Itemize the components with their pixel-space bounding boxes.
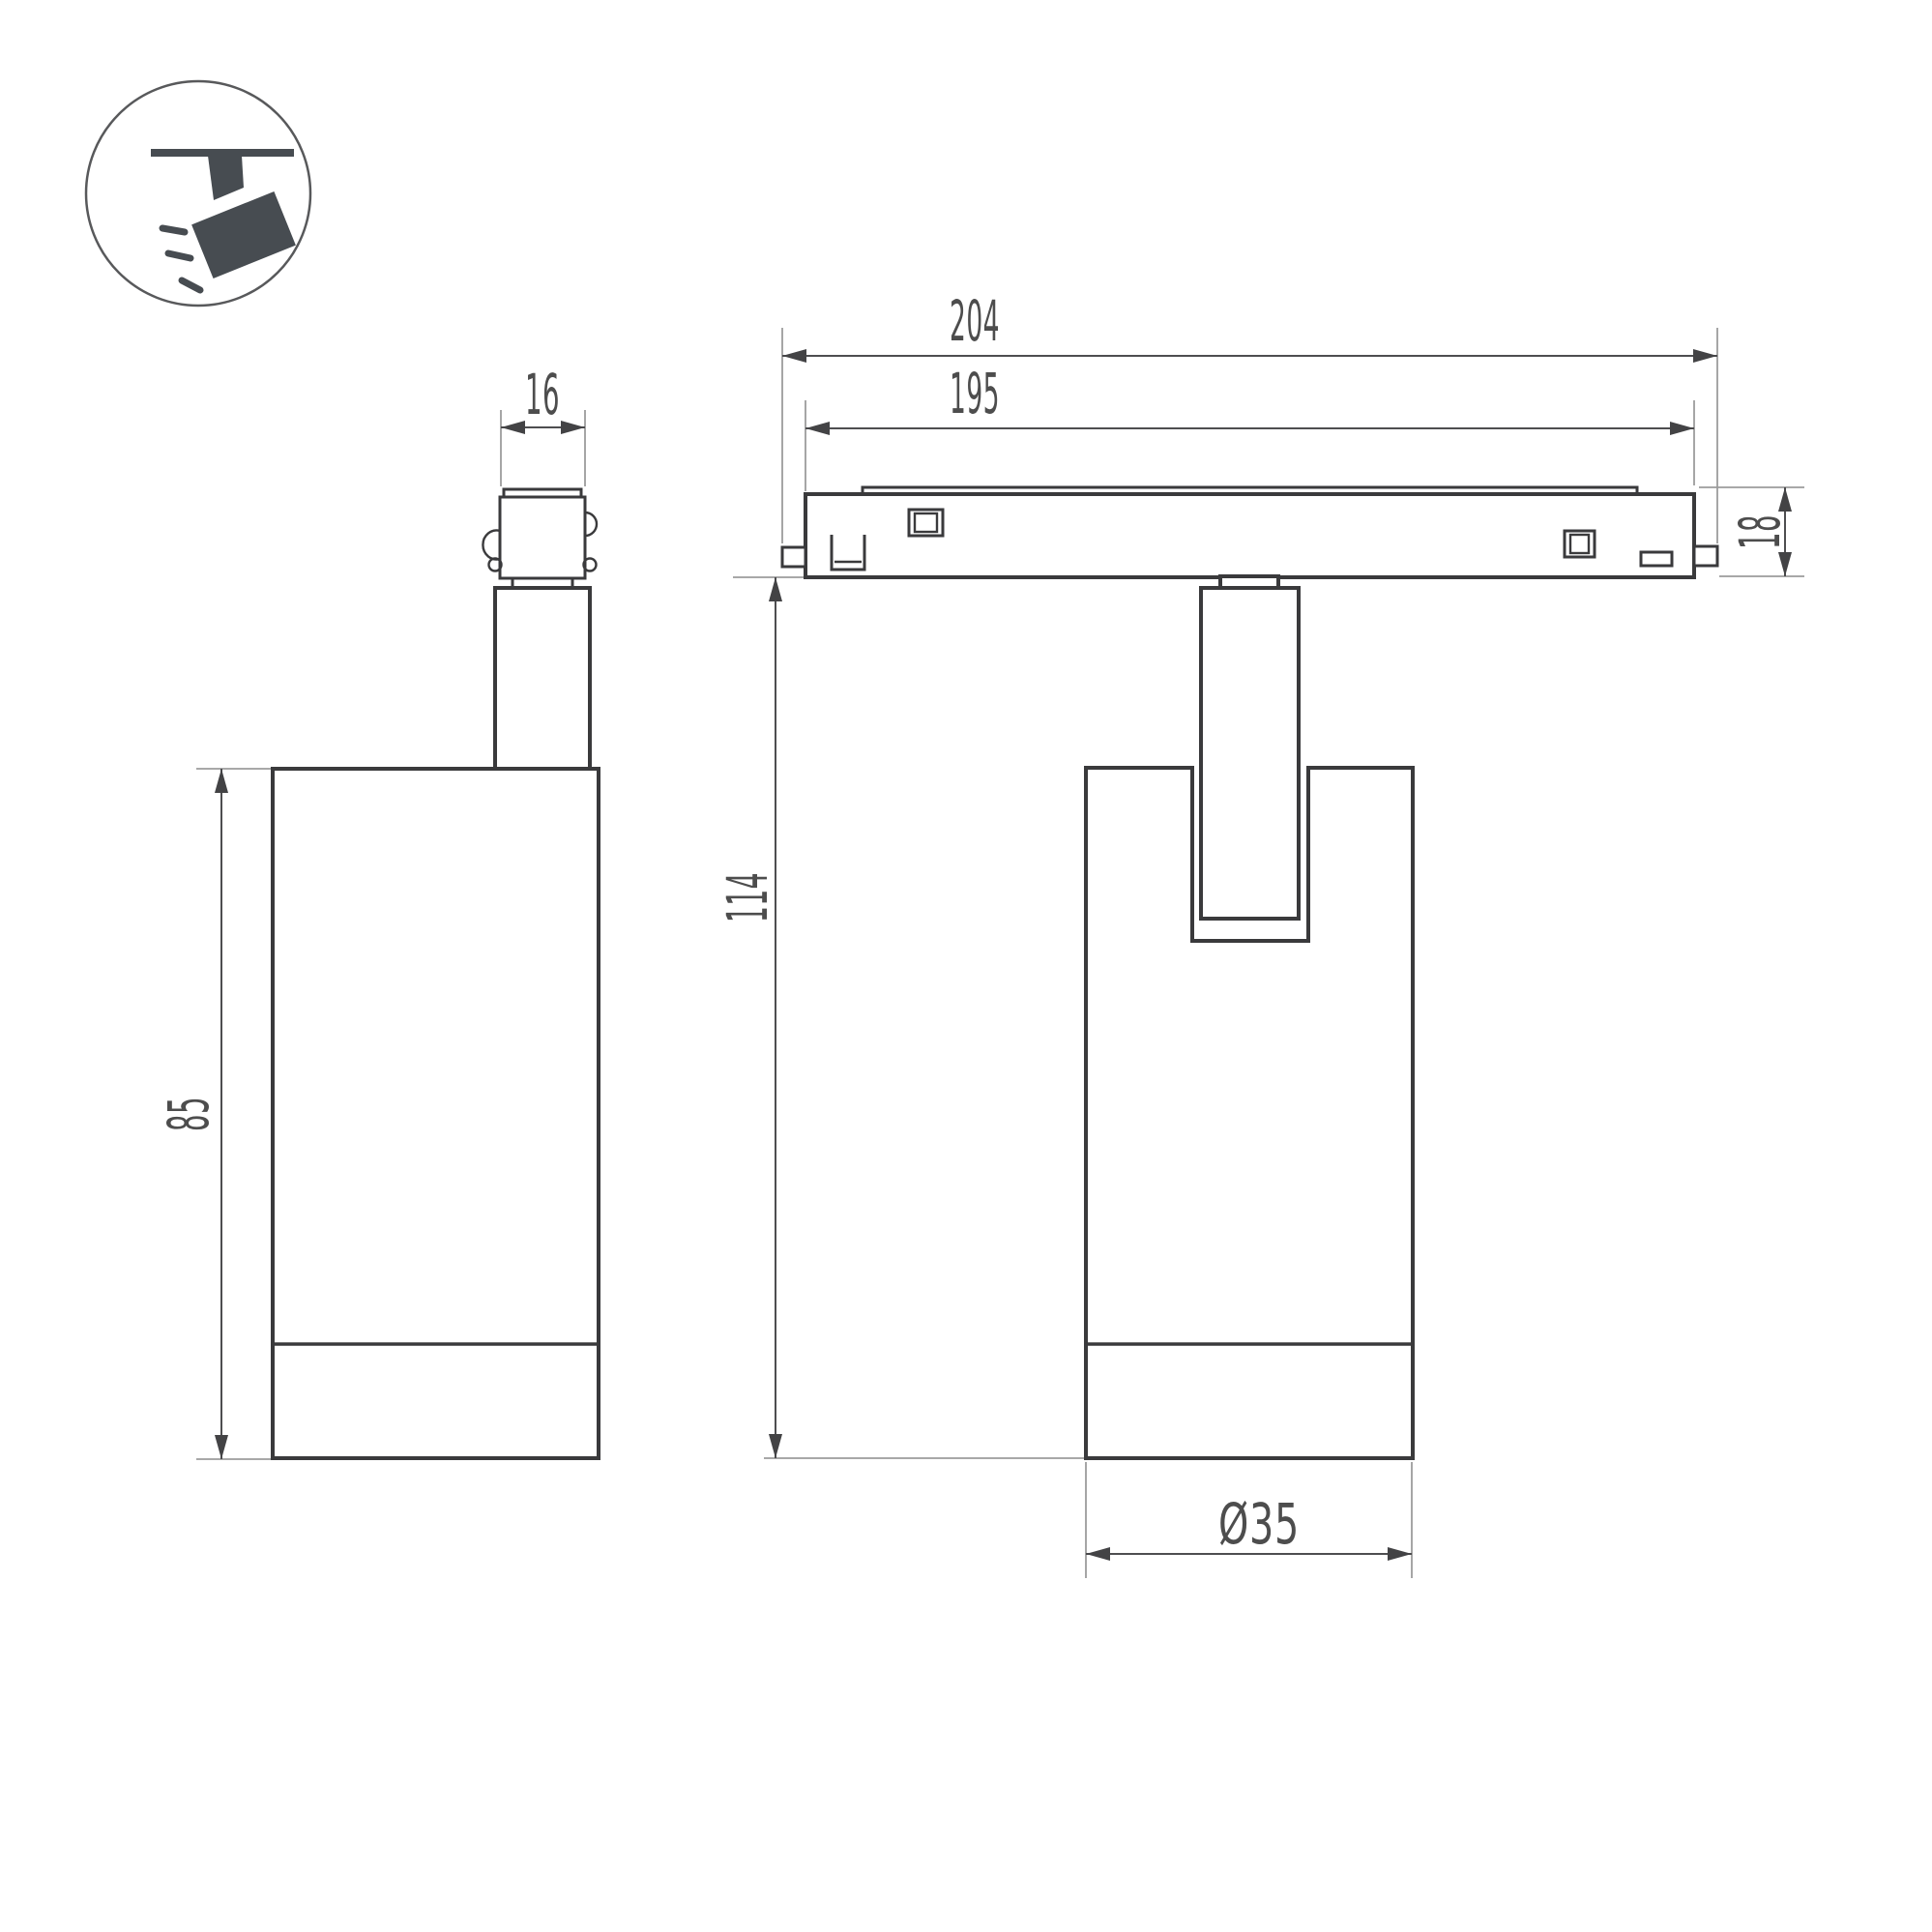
arrowhead-down [215,1435,228,1459]
track-right-latch [1694,546,1717,566]
front-pivot-stem [1201,588,1299,919]
dimension-label-195: 195 [950,361,1000,426]
dimension-label-85: 85 [156,1097,221,1131]
side-adapter-box [500,497,585,578]
dimension-16: 16 [501,362,585,486]
dimension-label-16: 16 [525,362,560,427]
side-head-body [273,769,599,1458]
arrowhead-up [1778,487,1792,512]
icon-ceiling-track-bar [151,149,294,157]
arrowhead-up [215,769,228,793]
front-track-neck [1220,576,1278,588]
arrowhead-left [782,349,806,363]
arrowhead-down [1778,552,1792,576]
dimension-label-18: 18 [1727,514,1793,549]
technical-drawing-canvas: 204 195 18 16 85 [0,0,1932,1932]
arrowhead-right [1693,349,1717,363]
dimension-label-114: 114 [715,872,780,922]
spotlight-front-view [1086,576,1413,1458]
side-adapter-hook-left [483,531,500,560]
dimension-195: 195 [805,361,1694,491]
icon-ring [86,81,310,306]
arrowhead-right [561,421,585,434]
arrowhead-right [1670,422,1694,435]
arrowhead-down [769,1434,782,1458]
dimension-label-204: 204 [950,288,1000,354]
arrowhead-right [1388,1547,1412,1561]
arrowhead-left [1086,1547,1110,1561]
side-adapter-hook-right [585,512,597,536]
dimension-114: 114 [715,577,1084,1458]
arrowhead-up [769,577,782,601]
dimension-drawing-svg: 204 195 18 16 85 [0,0,1932,1932]
icon-light-ray [162,228,185,232]
dimension-85: 85 [156,769,271,1459]
track-side-view [782,487,1717,577]
arrowhead-left [501,421,525,434]
side-pivot-stem [495,588,590,769]
icon-light-ray [168,253,190,258]
dimension-label-d35: Ø35 [1218,1491,1300,1557]
track-left-latch [782,547,805,567]
spotlight-side-view [273,489,599,1458]
arrowhead-left [805,422,830,435]
dimension-d35: Ø35 [1086,1462,1412,1578]
spotlight-on-track-icon [86,81,310,306]
